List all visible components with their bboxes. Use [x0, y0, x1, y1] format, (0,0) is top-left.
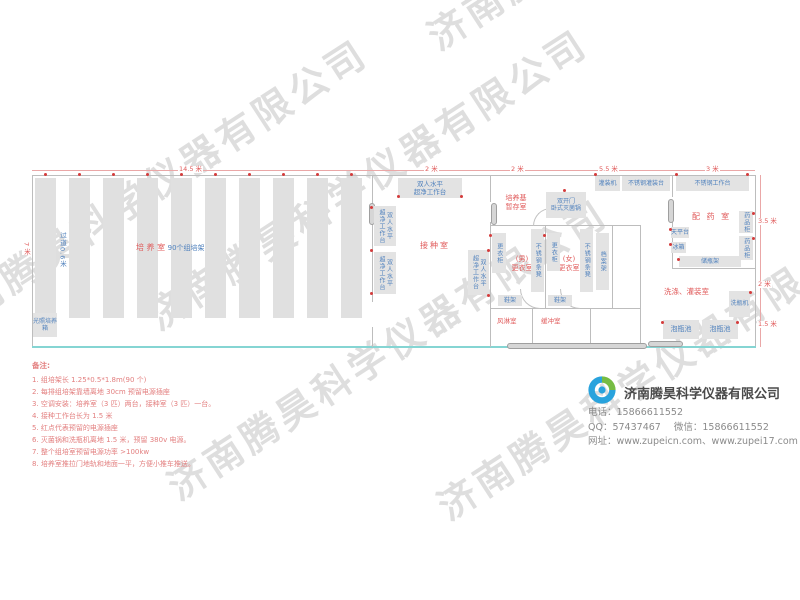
room-label-inoculation: 接种室 [420, 241, 450, 251]
power-outlet-dot [661, 321, 664, 324]
locker: 更衣柜 [492, 233, 506, 273]
wall-inoculation-right [490, 175, 491, 202]
power-outlet-dot [112, 173, 115, 176]
sliding-door [507, 343, 647, 349]
culture-rack-count-label: 90个组培架 [168, 244, 205, 252]
locker-label: 更衣柜 [495, 243, 503, 264]
laminar-workbench: 双人水平 超净工作台 [374, 206, 396, 246]
culture-room-label: 培 养 室 [136, 243, 165, 252]
power-outlet-dot [736, 321, 739, 324]
qq-label: QQ： [588, 422, 612, 433]
company-phone-row: 电话：15866611552 [588, 404, 683, 418]
note-item: 8. 培养室推拉门地轨和地面一平，方便小推车推送。 [32, 458, 215, 470]
steel-bench: 不锈钢条凳 [580, 229, 593, 292]
steel-bench-label: 不锈钢条凳 [534, 243, 542, 278]
phone-number: 15866611552 [617, 407, 684, 418]
workbench-label: 超净工作台 [471, 255, 479, 290]
dim-label-right-washing: 2 米 [757, 281, 772, 288]
workbench-label: 超净工作台 [414, 188, 447, 196]
culture-rack-row [35, 178, 56, 318]
culture-rack-row [341, 178, 362, 318]
workbench-label: 超净工作台 [378, 209, 386, 244]
wall-culture-inoculation [372, 327, 373, 347]
power-outlet-dot [248, 173, 251, 176]
note-item: 2. 每排组培架靠墙离地 30cm 预留电源插座 [32, 386, 215, 398]
wall-pharmacy-left [672, 175, 673, 197]
wall-airshower-buffer [532, 308, 533, 347]
refrigerator: 冰箱 [671, 242, 686, 253]
company-name: 济南腾昊科学仪器有限公司 [624, 383, 780, 402]
notes-block: 备注: 1. 组培架长 1.25*0.5*1.8m(90 个) 2. 每排组培架… [32, 360, 215, 470]
light-incubator-label: 光照培养箱 [33, 318, 57, 333]
note-item: 1. 组培架长 1.25*0.5*1.8m(90 个) [32, 374, 215, 386]
wechat-label: 微信： [674, 422, 703, 433]
dim-line [760, 268, 761, 308]
file-rack: 档案架 [596, 233, 609, 290]
file-rack-label: 档案架 [599, 251, 607, 272]
phone-label: 电话： [588, 407, 617, 418]
dim-label-top-middle: 5.5 米 [598, 166, 619, 173]
power-outlet-dot [746, 173, 749, 176]
filling-table-label: 不锈钢灌装台 [628, 180, 664, 188]
company-qq-wechat-row: QQ：57437467 微信：15866611552 [588, 419, 769, 433]
wall-pharmacy-bottom [672, 268, 755, 269]
steel-bench-label: 不锈钢条凳 [583, 243, 591, 278]
power-outlet-dot [370, 249, 373, 252]
note-item: 4. 接种工作台长为 1.5 米 [32, 410, 215, 422]
balance-table-label: 天平台 [671, 229, 689, 237]
bottle-washer: 洗瓶机 [729, 291, 750, 317]
work-table-label: 不锈钢工作台 [694, 180, 730, 188]
power-outlet-dot [487, 249, 490, 252]
room-label-buffer: 缓冲室 [541, 318, 561, 326]
wall-middle-right [640, 225, 641, 347]
soaking-pool: 泡瓶池 [663, 320, 699, 339]
wall-dressing-bottom [490, 308, 640, 309]
laminar-workbench: 双人水平 超净工作台 [374, 252, 396, 294]
wall-buffer-right [590, 308, 591, 347]
door-leaf [648, 341, 683, 347]
floorplan-page: 济南腾昊科学仪器有限公司 济南腾昊科学仪器有限公司 济南腾昊科学仪器有限公司 济… [0, 0, 800, 600]
power-outlet-dot [563, 189, 566, 192]
room-label-culture: 培 养 室 90个组培架 [136, 243, 205, 253]
medicine-cabinet: 药品柜 [739, 211, 753, 233]
note-item: 7. 整个组培室预留电源功率 >100kw [32, 446, 215, 458]
culture-rack-row [273, 178, 294, 318]
culture-rack-row [103, 178, 124, 318]
balance-table: 天平台 [671, 227, 689, 238]
wall-women-right [612, 225, 613, 308]
power-outlet-dot [78, 173, 81, 176]
power-outlet-dot [543, 234, 546, 237]
power-outlet-dot [675, 173, 678, 176]
dim-label-left-height: 7 米 [22, 242, 31, 255]
locker-label: 更衣柜 [550, 242, 558, 263]
culture-rack-row [69, 178, 90, 318]
room-label-medium-storage: 培养基 暂存室 [496, 194, 536, 213]
dim-label-top-culture: 14.5 米 [178, 166, 203, 173]
soaking-pool-label: 泡瓶池 [710, 325, 731, 334]
power-outlet-dot [669, 228, 672, 231]
power-outlet-dot [677, 258, 680, 261]
laminar-workbench: 双人水平 超净工作台 [468, 250, 489, 295]
wall-culture-inoculation [372, 175, 373, 302]
power-outlet-dot [460, 195, 463, 198]
culture-rack-row [307, 178, 328, 318]
steel-filling-table: 不锈钢灌装台 [622, 176, 670, 191]
dim-label-right-pools: 1.5 米 [757, 321, 778, 328]
power-outlet-dot [350, 173, 353, 176]
medicine-cabinet-label: 药品柜 [742, 238, 750, 259]
power-outlet-dot [146, 173, 149, 176]
bottle-shelf: 储瓶架 [679, 256, 741, 267]
dim-label-top-inoculation: 2 米 [424, 166, 439, 173]
door-track-bottom [32, 346, 756, 348]
power-outlet-dot [316, 173, 319, 176]
workbench-label: 双人水平 [417, 180, 443, 188]
workbench-label: 双人水平 [385, 259, 393, 287]
aisle-label: 过道0.6米 [59, 232, 66, 268]
steel-work-table: 不锈钢工作台 [676, 176, 749, 191]
medicine-cabinet: 药品柜 [739, 236, 753, 260]
power-outlet-dot [397, 195, 400, 198]
wechat-number: 15866611552 [702, 422, 769, 433]
power-outlet-dot [282, 173, 285, 176]
room-label-air-shower: 风淋室 [497, 318, 517, 326]
culture-rack-row [239, 178, 260, 318]
workbench-label: 双人水平 [479, 259, 487, 287]
sterilizer-label: 双开门 [557, 198, 575, 206]
wall-men-women [545, 225, 546, 308]
note-item: 5. 红点代表预留的电源插座 [32, 422, 215, 434]
light-incubator: 光照培养箱 [33, 313, 57, 337]
steel-bench: 不锈钢条凳 [531, 229, 544, 292]
soaking-pool: 泡瓶池 [702, 320, 738, 339]
watermark-text: 济南腾昊科学仪器有限公司 [415, 0, 800, 61]
medicine-cabinet-label: 药品柜 [742, 212, 750, 233]
bottle-shelf-label: 储瓶架 [701, 258, 719, 266]
power-outlet-dot [749, 291, 752, 294]
room-label-pharmacy: 配 药 室 [692, 212, 731, 222]
shoe-rack-label: 鞋架 [554, 297, 566, 305]
culture-rack-row [205, 178, 226, 318]
door-swing-arc [520, 289, 540, 309]
power-outlet-dot [370, 292, 373, 295]
sterilizer-label: 卧式灭菌锅 [551, 205, 581, 213]
filling-machine-label: 灌装机 [598, 180, 616, 188]
notes-title: 备注: [32, 360, 215, 371]
company-logo-icon [586, 374, 618, 406]
power-outlet-dot [669, 243, 672, 246]
bottle-washer-label: 洗瓶机 [730, 300, 748, 308]
refrigerator-label: 冰箱 [672, 244, 684, 252]
locker: 更衣柜 [547, 233, 560, 271]
power-outlet-dot [752, 212, 755, 215]
workbench-label: 双人水平 [385, 212, 393, 240]
dim-label-top-medium: 2 米 [510, 166, 525, 173]
workbench-label: 超净工作台 [378, 256, 386, 291]
shoe-rack-label: 鞋架 [504, 297, 516, 305]
laminar-workbench: 双人水平 超净工作台 [398, 178, 462, 198]
power-outlet-dot [44, 173, 47, 176]
power-outlet-dot [489, 234, 492, 237]
power-outlet-dot [487, 294, 490, 297]
wall-right [755, 175, 756, 347]
website-urls: www.zupeicn.com、www.zupei17.com [617, 436, 798, 447]
room-label-washing: 洗涤、灌装室 [664, 287, 709, 296]
shoe-rack: 鞋架 [498, 295, 522, 306]
note-item: 6. 灭菌锅和洗瓶机离地 1.5 米，预留 380v 电源。 [32, 434, 215, 446]
power-outlet-dot [752, 237, 755, 240]
qq-number: 57437467 [612, 422, 660, 433]
soaking-pool-label: 泡瓶池 [671, 325, 692, 334]
filling-machine: 灌装机 [595, 176, 620, 191]
note-item: 3. 空调安装：培养室（3 匹）两台，接种室（3 匹）一台。 [32, 398, 215, 410]
company-web-row: 网址：www.zupeicn.com、www.zupei17.com [588, 433, 798, 447]
website-label: 网址： [588, 436, 617, 447]
dim-label-right-pharmacy: 3.5 米 [757, 218, 778, 225]
wall-dressing-top [490, 225, 640, 226]
power-outlet-dot [370, 206, 373, 209]
door-leaf [668, 199, 674, 223]
autoclave-sterilizer: 双开门 卧式灭菌锅 [546, 192, 586, 218]
power-outlet-dot [214, 173, 217, 176]
dim-label-top-pharmacy: 3 米 [705, 166, 720, 173]
power-outlet-dot [180, 173, 183, 176]
medium-storage-line2: 暂存室 [496, 203, 536, 212]
shoe-rack: 鞋架 [548, 295, 572, 306]
power-outlet-dot [594, 173, 597, 176]
wall-inoculation-right [490, 222, 491, 347]
